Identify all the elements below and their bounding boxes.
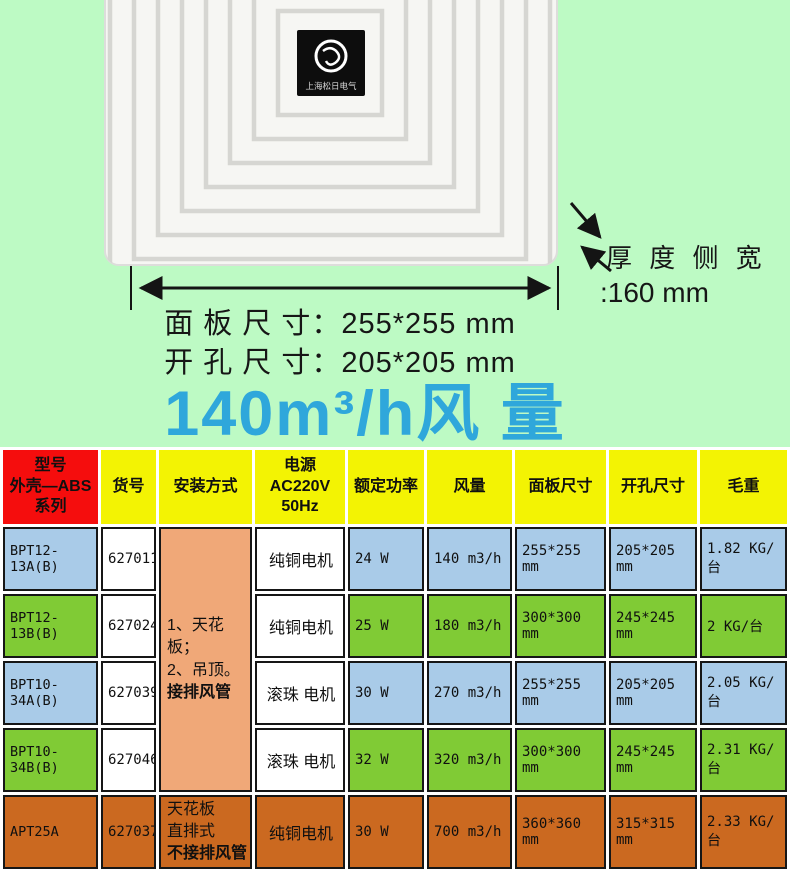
cell-hole-size: 245*245 mm <box>609 728 697 792</box>
column-header: 电源 AC220V 50Hz <box>255 450 345 524</box>
cell-power: 30 W <box>348 795 424 869</box>
column-header: 毛重 <box>700 450 787 524</box>
table-row: BPT12-13B(B)627024纯铜电机25 W180 m3/h300*30… <box>3 594 787 658</box>
cell-panel-size: 255*255 mm <box>515 527 606 591</box>
cell-sku: 627024 <box>101 594 156 658</box>
cell-airflow: 270 m3/h <box>427 661 512 725</box>
cell-model: APT25A <box>3 795 98 869</box>
cell-hole-size: 205*205 mm <box>609 527 697 591</box>
column-header: 面板尺寸 <box>515 450 606 524</box>
cell-power: 24 W <box>348 527 424 591</box>
column-header: 安装方式 <box>159 450 252 524</box>
cell-weight: 2.31 KG/台 <box>700 728 787 792</box>
cell-hole-size: 315*315 mm <box>609 795 697 869</box>
spec-table-section: 型号 外壳—ABS 系列货号安装方式电源 AC220V 50Hz额定功率风量面板… <box>0 447 790 881</box>
cell-airflow: 180 m3/h <box>427 594 512 658</box>
cell-panel-size: 300*300 mm <box>515 728 606 792</box>
cell-panel-size: 300*300 mm <box>515 594 606 658</box>
cell-sku: 627039 <box>101 661 156 725</box>
cell-hole-size: 205*205 mm <box>609 661 697 725</box>
cell-weight: 2.05 KG/台 <box>700 661 787 725</box>
thickness-value: :160 mm <box>600 277 709 309</box>
header-row: 型号 外壳—ABS 系列货号安装方式电源 AC220V 50Hz额定功率风量面板… <box>3 450 787 524</box>
column-header: 风量 <box>427 450 512 524</box>
cell-motor: 滚珠 电机 <box>255 661 345 725</box>
cell-sku: 627011 <box>101 527 156 591</box>
cell-model: BPT12-13A(B) <box>3 527 98 591</box>
cell-hole-size: 245*245 mm <box>609 594 697 658</box>
cell-model: BPT10-34B(B) <box>3 728 98 792</box>
cell-weight: 2 KG/台 <box>700 594 787 658</box>
column-header: 型号 外壳—ABS 系列 <box>3 450 98 524</box>
cell-model: BPT10-34A(B) <box>3 661 98 725</box>
cell-motor: 纯铜电机 <box>255 527 345 591</box>
product-hero: 上海松日电气 面 板 尺 寸：255*255 mm 开 孔 尺 寸：205*20… <box>0 0 790 447</box>
product-spec-page: 上海松日电气 面 板 尺 寸：255*255 mm 开 孔 尺 寸：205*20… <box>0 0 790 881</box>
cell-weight: 1.82 KG/台 <box>700 527 787 591</box>
cell-model: BPT12-13B(B) <box>3 594 98 658</box>
table-row: BPT10-34A(B)627039滚珠 电机30 W270 m3/h255*2… <box>3 661 787 725</box>
cell-panel-size: 255*255 mm <box>515 661 606 725</box>
table-row: APT25A627037天花板直排式不接排风管纯铜电机30 W700 m3/h3… <box>3 795 787 869</box>
table-row: BPT12-13A(B)6270111、天花板；2、吊顶。接排风管纯铜电机24 … <box>3 527 787 591</box>
cell-motor: 纯铜电机 <box>255 795 345 869</box>
cell-sku: 627037 <box>101 795 156 869</box>
cell-install: 天花板直排式不接排风管 <box>159 795 252 869</box>
cell-power: 25 W <box>348 594 424 658</box>
install-line-bold: 接排风管 <box>167 682 247 704</box>
column-header: 额定功率 <box>348 450 424 524</box>
cell-airflow: 140 m3/h <box>427 527 512 591</box>
table-row: BPT10-34B(B)627046滚珠 电机32 W320 m3/h300*3… <box>3 728 787 792</box>
panel-size-label: 面 板 尺 寸：255*255 mm <box>10 300 670 342</box>
cell-install-merged: 1、天花板；2、吊顶。接排风管 <box>159 527 252 792</box>
install-line: 直排式 <box>167 821 247 843</box>
cell-motor: 滚珠 电机 <box>255 728 345 792</box>
install-line: 2、吊顶。 <box>167 660 247 682</box>
cell-panel-size: 360*360 mm <box>515 795 606 869</box>
cell-power: 30 W <box>348 661 424 725</box>
cell-sku: 627046 <box>101 728 156 792</box>
cell-airflow: 700 m3/h <box>427 795 512 869</box>
install-line-bold: 不接排风管 <box>167 843 247 865</box>
thickness-label: 厚 度 侧 宽 <box>606 238 767 275</box>
column-header: 货号 <box>101 450 156 524</box>
cell-power: 32 W <box>348 728 424 792</box>
install-line: 1、天花板； <box>167 615 247 659</box>
cell-weight: 2.33 KG/台 <box>700 795 787 869</box>
cell-airflow: 320 m3/h <box>427 728 512 792</box>
column-header: 开孔尺寸 <box>609 450 697 524</box>
airflow-headline: 140m³/h风 量 <box>0 363 730 447</box>
install-line: 天花板 <box>167 799 247 821</box>
cell-motor: 纯铜电机 <box>255 594 345 658</box>
thickness-dimension-arrow <box>571 203 611 271</box>
spec-table: 型号 外壳—ABS 系列货号安装方式电源 AC220V 50Hz额定功率风量面板… <box>0 447 790 872</box>
